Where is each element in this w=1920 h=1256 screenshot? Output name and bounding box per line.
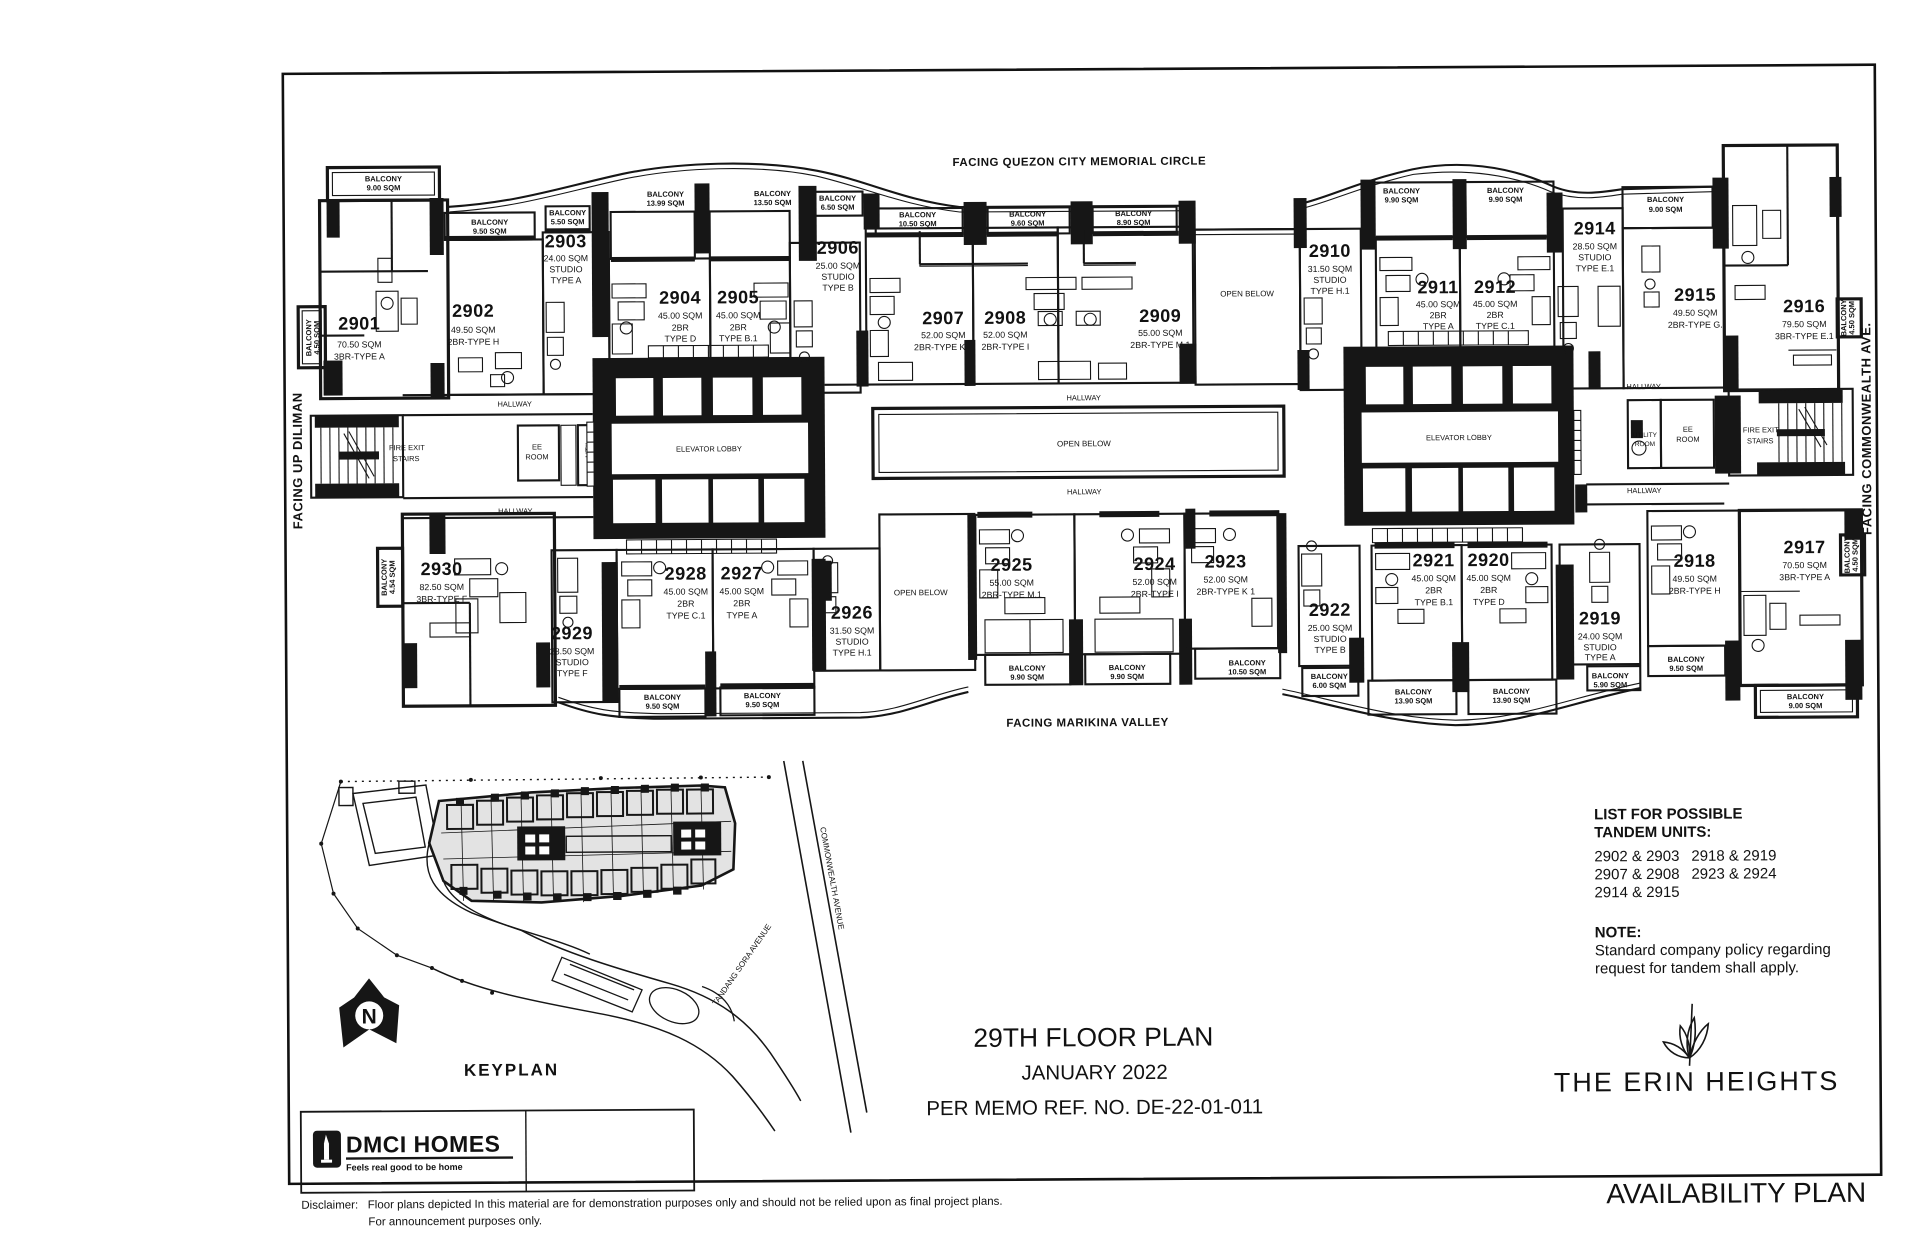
svg-text:TYPE A: TYPE A bbox=[726, 610, 757, 620]
svg-text:TYPE D: TYPE D bbox=[664, 334, 696, 344]
svg-text:49.50 SQM: 49.50 SQM bbox=[451, 325, 496, 335]
svg-text:2923: 2923 bbox=[1205, 551, 1247, 571]
svg-text:BALCONY: BALCONY bbox=[1009, 664, 1046, 673]
svg-text:31.50 SQM: 31.50 SQM bbox=[1308, 264, 1353, 274]
svg-text:STAIRS: STAIRS bbox=[393, 454, 420, 463]
svg-text:OPEN BELOW: OPEN BELOW bbox=[1220, 289, 1274, 298]
svg-text:BALCONY: BALCONY bbox=[1009, 209, 1046, 218]
svg-text:UTILITY: UTILITY bbox=[1633, 432, 1658, 439]
svg-text:45.00 SQM: 45.00 SQM bbox=[720, 586, 765, 596]
svg-text:ELEVATOR LOBBY: ELEVATOR LOBBY bbox=[1426, 433, 1492, 442]
svg-text:Feels real good to be home: Feels real good to be home bbox=[346, 1162, 463, 1173]
svg-text:BALCONY: BALCONY bbox=[549, 208, 586, 217]
svg-text:2BR-TYPE G.: 2BR-TYPE G. bbox=[1668, 320, 1723, 330]
svg-text:TYPE B.1: TYPE B.1 bbox=[719, 333, 758, 343]
svg-text:9.50 SQM: 9.50 SQM bbox=[1669, 664, 1703, 673]
svg-text:BALCONY: BALCONY bbox=[471, 218, 508, 227]
svg-text:BALCONY: BALCONY bbox=[1109, 663, 1146, 672]
svg-text:2922: 2922 bbox=[1309, 600, 1351, 620]
svg-text:ROOM: ROOM bbox=[1676, 435, 1699, 444]
svg-text:45.00 SQM: 45.00 SQM bbox=[1466, 573, 1511, 583]
svg-text:STUDIO: STUDIO bbox=[1583, 642, 1616, 652]
svg-text:TYPE D: TYPE D bbox=[1473, 597, 1505, 607]
svg-text:2905: 2905 bbox=[717, 287, 759, 307]
svg-text:13.99 SQM: 13.99 SQM bbox=[647, 199, 685, 208]
svg-text:EE: EE bbox=[1683, 425, 1693, 434]
svg-text:JANUARY 2022: JANUARY 2022 bbox=[1021, 1061, 1167, 1085]
svg-text:2BR: 2BR bbox=[677, 599, 694, 609]
svg-text:TYPE B.1: TYPE B.1 bbox=[1415, 597, 1454, 607]
svg-text:3BR-TYPE A: 3BR-TYPE A bbox=[334, 351, 385, 361]
svg-text:TYPE C.1: TYPE C.1 bbox=[666, 610, 705, 620]
svg-text:BALCONY: BALCONY bbox=[1647, 195, 1684, 204]
svg-text:BALCONY: BALCONY bbox=[1229, 658, 1266, 667]
svg-text:9.90 SQM: 9.90 SQM bbox=[1010, 673, 1044, 682]
svg-text:STUDIO: STUDIO bbox=[549, 264, 582, 274]
svg-text:FACING COMMONWEALTH AVE.: FACING COMMONWEALTH AVE. bbox=[1858, 322, 1874, 535]
svg-text:STUDIO: STUDIO bbox=[1313, 275, 1346, 285]
svg-text:FIRE EXIT: FIRE EXIT bbox=[1743, 425, 1779, 434]
svg-text:FACING MARIKINA VALLEY: FACING MARIKINA VALLEY bbox=[1006, 717, 1168, 730]
svg-text:9.00 SQM: 9.00 SQM bbox=[1789, 701, 1823, 710]
svg-text:BALCONY: BALCONY bbox=[1383, 186, 1420, 195]
svg-text:BALCONY: BALCONY bbox=[1592, 671, 1629, 680]
svg-text:9.50 SQM: 9.50 SQM bbox=[746, 700, 780, 709]
svg-text:BALCONY: BALCONY bbox=[647, 190, 684, 199]
svg-text:2BR: 2BR bbox=[730, 322, 747, 332]
svg-text:13.90 SQM: 13.90 SQM bbox=[1492, 696, 1530, 705]
svg-text:6.50 SQM: 6.50 SQM bbox=[821, 203, 855, 212]
svg-text:2BR: 2BR bbox=[1487, 310, 1504, 320]
svg-text:45.00 SQM: 45.00 SQM bbox=[1473, 299, 1518, 309]
svg-text:HALLWAY: HALLWAY bbox=[1627, 486, 1662, 495]
svg-text:2929: 2929 bbox=[551, 623, 593, 643]
svg-text:HALLWAY: HALLWAY bbox=[1066, 393, 1101, 402]
svg-text:STUDIO: STUDIO bbox=[556, 657, 589, 667]
svg-text:2927: 2927 bbox=[721, 563, 763, 583]
svg-text:2923 & 2924: 2923 & 2924 bbox=[1691, 865, 1776, 882]
svg-text:BALCONY: BALCONY bbox=[1787, 692, 1824, 701]
svg-text:TYPE F: TYPE F bbox=[557, 668, 588, 678]
svg-text:2930: 2930 bbox=[421, 559, 463, 579]
svg-text:DMCI HOMES: DMCI HOMES bbox=[346, 1131, 501, 1158]
svg-text:2917: 2917 bbox=[1783, 537, 1825, 557]
svg-text:FIRE EXIT: FIRE EXIT bbox=[389, 443, 425, 452]
svg-text:2902 & 2903: 2902 & 2903 bbox=[1594, 848, 1679, 865]
svg-text:4.50 SQM: 4.50 SQM bbox=[312, 321, 321, 355]
svg-text:STUDIO: STUDIO bbox=[821, 272, 854, 282]
svg-text:ROOM: ROOM bbox=[525, 452, 548, 461]
svg-text:45.00 SQM: 45.00 SQM bbox=[1411, 573, 1456, 583]
svg-text:2916: 2916 bbox=[1783, 296, 1825, 316]
svg-text:5.50 SQM: 5.50 SQM bbox=[551, 217, 585, 226]
svg-text:8.90 SQM: 8.90 SQM bbox=[1117, 218, 1151, 227]
svg-text:52.00 SQM: 52.00 SQM bbox=[1203, 574, 1248, 584]
svg-text:HALLWAY: HALLWAY bbox=[1067, 487, 1102, 496]
svg-text:70.50 SQM: 70.50 SQM bbox=[337, 339, 382, 349]
svg-text:9.00 SQM: 9.00 SQM bbox=[1649, 205, 1683, 214]
svg-text:49.50 SQM: 49.50 SQM bbox=[1672, 574, 1717, 584]
svg-text:FACING QUEZON CITY MEMORIAL CI: FACING QUEZON CITY MEMORIAL CIRCLE bbox=[952, 156, 1206, 169]
svg-text:4.54 SQM: 4.54 SQM bbox=[388, 560, 397, 594]
svg-text:2903: 2903 bbox=[545, 231, 587, 251]
svg-text:2904: 2904 bbox=[659, 287, 701, 307]
svg-text:STUDIO: STUDIO bbox=[1578, 252, 1611, 262]
svg-text:BALCONY: BALCONY bbox=[754, 189, 791, 198]
svg-text:HALLWAY: HALLWAY bbox=[497, 399, 532, 408]
svg-text:BALCONY: BALCONY bbox=[1115, 209, 1152, 218]
svg-text:HALLWAY: HALLWAY bbox=[1626, 382, 1661, 391]
svg-text:2911: 2911 bbox=[1417, 277, 1458, 297]
svg-text:BALCONY: BALCONY bbox=[365, 174, 402, 183]
svg-text:BALCONY: BALCONY bbox=[1668, 655, 1705, 664]
svg-text:BALCONY: BALCONY bbox=[899, 210, 936, 219]
svg-text:BALCONY: BALCONY bbox=[1493, 687, 1530, 696]
svg-text:OPEN BELOW: OPEN BELOW bbox=[1057, 439, 1111, 448]
svg-text:For announcement purposes only: For announcement purposes only. bbox=[368, 1215, 542, 1228]
svg-text:55.00 SQM: 55.00 SQM bbox=[989, 578, 1034, 588]
svg-text:BALCONY: BALCONY bbox=[744, 691, 781, 700]
svg-text:2901: 2901 bbox=[338, 313, 380, 333]
svg-text:79.50 SQM: 79.50 SQM bbox=[1782, 319, 1827, 329]
svg-text:49.50 SQM: 49.50 SQM bbox=[1673, 308, 1718, 318]
svg-text:2919: 2919 bbox=[1579, 608, 1621, 628]
svg-text:31.50 SQM: 31.50 SQM bbox=[830, 625, 875, 635]
svg-text:9.90 SQM: 9.90 SQM bbox=[1489, 195, 1523, 204]
svg-text:2928: 2928 bbox=[665, 563, 707, 583]
svg-text:2907: 2907 bbox=[922, 308, 964, 328]
svg-text:5.90 SQM: 5.90 SQM bbox=[1593, 680, 1627, 689]
svg-text:4.50 SQM: 4.50 SQM bbox=[1850, 538, 1859, 572]
svg-text:2BR-TYPE K 1: 2BR-TYPE K 1 bbox=[1196, 586, 1255, 596]
svg-text:28.50 SQM: 28.50 SQM bbox=[550, 646, 595, 656]
svg-text:AVAILABILITY PLAN: AVAILABILITY PLAN bbox=[1606, 1177, 1866, 1209]
svg-text:2907 & 2908: 2907 & 2908 bbox=[1594, 866, 1679, 883]
svg-text:TYPE A: TYPE A bbox=[1423, 321, 1454, 331]
svg-text:2926: 2926 bbox=[831, 603, 873, 623]
svg-text:2914: 2914 bbox=[1574, 218, 1616, 238]
svg-text:3BR-TYPE E.1: 3BR-TYPE E.1 bbox=[1775, 331, 1834, 341]
svg-text:10.50 SQM: 10.50 SQM bbox=[1228, 667, 1266, 676]
svg-text:25.00 SQM: 25.00 SQM bbox=[1308, 623, 1353, 633]
svg-text:2920: 2920 bbox=[1468, 550, 1510, 570]
svg-text:24.00 SQM: 24.00 SQM bbox=[1578, 631, 1623, 641]
svg-text:2918: 2918 bbox=[1674, 551, 1716, 571]
svg-text:45.00 SQM: 45.00 SQM bbox=[664, 586, 709, 596]
svg-text:4.50 SQM: 4.50 SQM bbox=[1847, 301, 1856, 335]
svg-text:45.00 SQM: 45.00 SQM bbox=[658, 310, 703, 320]
svg-text:2918 & 2919: 2918 & 2919 bbox=[1691, 847, 1776, 864]
svg-text:TYPE C.1: TYPE C.1 bbox=[1476, 321, 1515, 331]
svg-text:70.50 SQM: 70.50 SQM bbox=[1782, 560, 1827, 570]
svg-text:FACING UP DILIMAN: FACING UP DILIMAN bbox=[290, 392, 306, 529]
svg-text:28.50 SQM: 28.50 SQM bbox=[1573, 241, 1618, 251]
svg-text:LIST FOR POSSIBLE: LIST FOR POSSIBLE bbox=[1594, 805, 1742, 823]
svg-text:ROOM: ROOM bbox=[1635, 441, 1655, 448]
svg-text:82.50 SQM: 82.50 SQM bbox=[419, 582, 464, 592]
svg-text:52.00 SQM: 52.00 SQM bbox=[1132, 577, 1177, 587]
svg-text:2BR: 2BR bbox=[1480, 585, 1497, 595]
svg-text:TANDEM UNITS:: TANDEM UNITS: bbox=[1594, 824, 1711, 842]
svg-text:52.00 SQM: 52.00 SQM bbox=[983, 330, 1028, 340]
svg-text:9.90 SQM: 9.90 SQM bbox=[1385, 195, 1419, 204]
svg-text:9.00 SQM: 9.00 SQM bbox=[367, 183, 401, 192]
svg-text:45.00 SQM: 45.00 SQM bbox=[1416, 299, 1461, 309]
svg-text:2910: 2910 bbox=[1309, 241, 1351, 261]
svg-text:BALCONY: BALCONY bbox=[644, 693, 681, 702]
svg-text:2BR: 2BR bbox=[672, 323, 689, 333]
svg-text:2915: 2915 bbox=[1674, 285, 1716, 305]
svg-text:THE ERIN HEIGHTS: THE ERIN HEIGHTS bbox=[1554, 1066, 1840, 1098]
svg-text:2BR-TYPE H: 2BR-TYPE H bbox=[447, 337, 499, 347]
svg-text:6.00 SQM: 6.00 SQM bbox=[1312, 681, 1346, 690]
svg-text:2925: 2925 bbox=[991, 555, 1033, 575]
svg-text:STUDIO: STUDIO bbox=[1313, 634, 1346, 644]
svg-text:24.00 SQM: 24.00 SQM bbox=[544, 253, 589, 263]
svg-text:STUDIO: STUDIO bbox=[835, 637, 868, 647]
svg-text:2BR: 2BR bbox=[733, 598, 750, 608]
svg-text:TYPE A: TYPE A bbox=[551, 275, 582, 285]
svg-text:TYPE H.1: TYPE H.1 bbox=[833, 648, 872, 658]
svg-text:2BR: 2BR bbox=[1430, 310, 1447, 320]
svg-text:2BR-TYPE I: 2BR-TYPE I bbox=[981, 342, 1029, 352]
svg-text:BALCONY: BALCONY bbox=[1395, 687, 1432, 696]
svg-text:45.00 SQM: 45.00 SQM bbox=[716, 310, 761, 320]
svg-text:9.50 SQM: 9.50 SQM bbox=[646, 702, 680, 711]
svg-text:STAIRS: STAIRS bbox=[1747, 436, 1774, 445]
svg-text:Standard company policy regard: Standard company policy regarding bbox=[1595, 941, 1831, 959]
svg-text:TYPE A: TYPE A bbox=[1585, 652, 1616, 662]
svg-text:NOTE:: NOTE: bbox=[1595, 924, 1642, 941]
svg-text:2BR-TYPE K.1: 2BR-TYPE K.1 bbox=[914, 342, 973, 352]
svg-text:EE: EE bbox=[532, 442, 542, 451]
svg-text:KEYPLAN: KEYPLAN bbox=[464, 1060, 559, 1080]
svg-text:9.50 SQM: 9.50 SQM bbox=[473, 227, 507, 236]
svg-text:TYPE B: TYPE B bbox=[822, 283, 853, 293]
svg-text:BALCONY: BALCONY bbox=[819, 194, 856, 203]
svg-text:N: N bbox=[362, 1005, 377, 1028]
svg-text:2BR: 2BR bbox=[1425, 585, 1442, 595]
svg-text:2902: 2902 bbox=[452, 301, 494, 321]
svg-text:TYPE B: TYPE B bbox=[1314, 645, 1345, 655]
svg-text:13.50 SQM: 13.50 SQM bbox=[754, 198, 792, 207]
svg-text:BALCONY: BALCONY bbox=[1487, 186, 1524, 195]
svg-text:3BR-TYPE A: 3BR-TYPE A bbox=[1779, 572, 1830, 582]
svg-text:10.50 SQM: 10.50 SQM bbox=[899, 219, 937, 228]
svg-text:2909: 2909 bbox=[1139, 306, 1181, 326]
svg-text:29TH FLOOR PLAN: 29TH FLOOR PLAN bbox=[973, 1022, 1213, 1053]
svg-text:55.00 SQM: 55.00 SQM bbox=[1138, 328, 1183, 338]
svg-text:9.90 SQM: 9.90 SQM bbox=[1110, 672, 1144, 681]
svg-text:TYPE H.1: TYPE H.1 bbox=[1310, 286, 1349, 296]
svg-text:52.00 SQM: 52.00 SQM bbox=[921, 330, 966, 340]
svg-text:2906: 2906 bbox=[817, 238, 859, 258]
svg-text:BALCONY: BALCONY bbox=[1311, 672, 1348, 681]
svg-text:2921: 2921 bbox=[1413, 550, 1455, 570]
svg-text:2914 & 2915: 2914 & 2915 bbox=[1594, 884, 1679, 901]
svg-text:TYPE E.1: TYPE E.1 bbox=[1576, 263, 1615, 273]
svg-text:2BR-TYPE H: 2BR-TYPE H bbox=[1669, 586, 1721, 596]
svg-text:request for tandem shall apply: request for tandem shall apply. bbox=[1595, 959, 1799, 977]
svg-text:OPEN BELOW: OPEN BELOW bbox=[894, 588, 948, 597]
svg-text:25.00 SQM: 25.00 SQM bbox=[816, 261, 861, 271]
svg-text:2908: 2908 bbox=[984, 308, 1026, 328]
svg-text:9.60 SQM: 9.60 SQM bbox=[1011, 219, 1045, 228]
svg-text:PER MEMO REF. NO. DE-22-01-011: PER MEMO REF. NO. DE-22-01-011 bbox=[926, 1095, 1263, 1120]
svg-text:ELEVATOR LOBBY: ELEVATOR LOBBY bbox=[676, 444, 742, 453]
svg-text:13.90 SQM: 13.90 SQM bbox=[1394, 696, 1432, 705]
